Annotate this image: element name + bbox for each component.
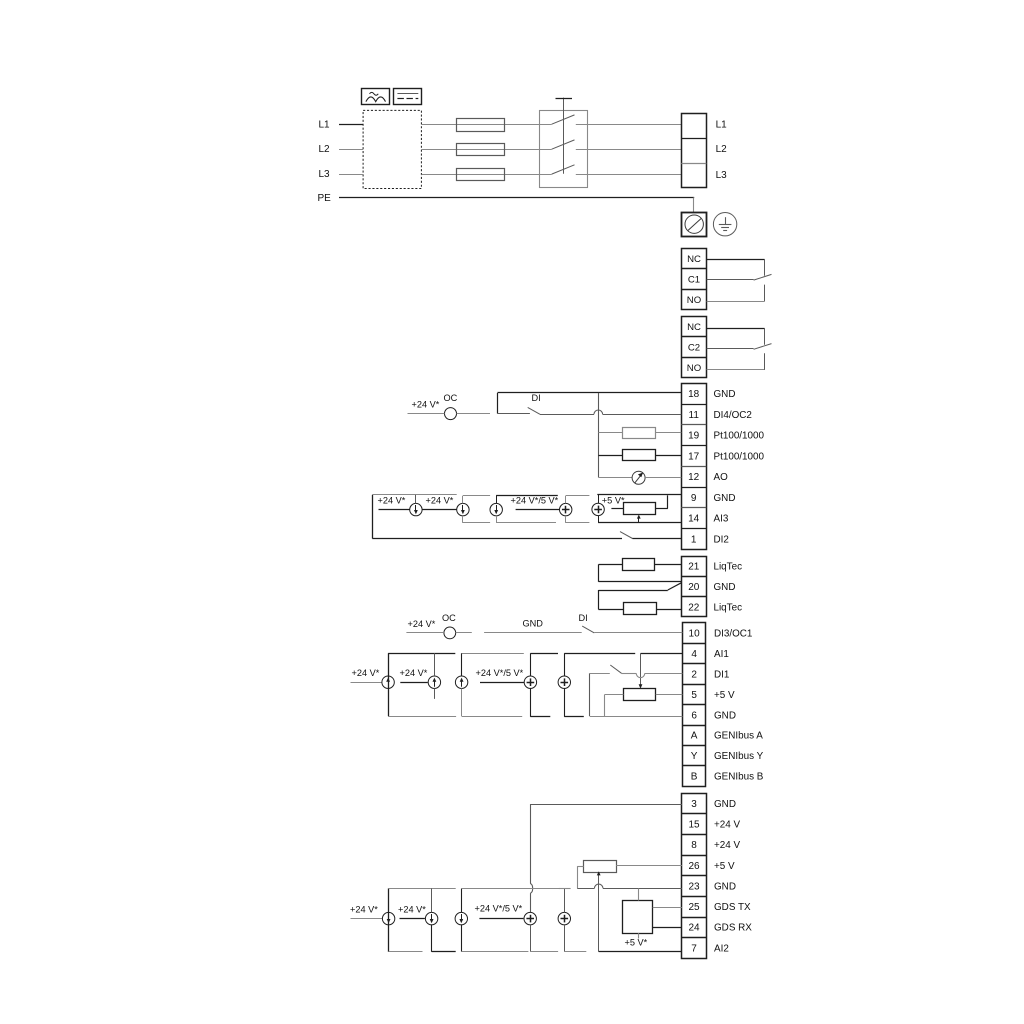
svg-text:25: 25 xyxy=(688,902,700,913)
svg-text:GDS TX: GDS TX xyxy=(714,902,751,913)
svg-text:+24 V*: +24 V* xyxy=(398,905,426,915)
svg-text:+24 V*: +24 V* xyxy=(352,668,380,678)
svg-text:C2: C2 xyxy=(688,343,700,354)
svg-text:+24 V*/5 V*: +24 V*/5 V* xyxy=(475,903,523,913)
svg-text:PE: PE xyxy=(318,193,332,204)
svg-text:GND: GND xyxy=(714,582,736,593)
svg-text:14: 14 xyxy=(688,514,700,525)
svg-text:10: 10 xyxy=(689,629,701,640)
svg-text:NC: NC xyxy=(687,254,701,265)
svg-text:GENIbus B: GENIbus B xyxy=(714,772,764,783)
svg-text:GENIbus A: GENIbus A xyxy=(714,731,763,742)
svg-text:+24 V*: +24 V* xyxy=(408,619,436,629)
svg-text:OC: OC xyxy=(444,393,458,403)
svg-text:DI1: DI1 xyxy=(714,669,730,680)
svg-text:GENIbus Y: GENIbus Y xyxy=(714,751,764,762)
svg-text:4: 4 xyxy=(691,649,697,660)
svg-text:LiqTec: LiqTec xyxy=(714,562,743,573)
svg-text:+24 V*: +24 V* xyxy=(400,668,428,678)
svg-text:+24 V: +24 V xyxy=(714,840,740,851)
svg-text:22: 22 xyxy=(688,602,700,613)
svg-text:8: 8 xyxy=(691,840,697,851)
svg-text:DI3/OC1: DI3/OC1 xyxy=(714,629,753,640)
svg-text:+24 V*: +24 V* xyxy=(426,496,454,506)
svg-text:+24 V*/5 V*: +24 V*/5 V* xyxy=(511,496,559,506)
svg-text:21: 21 xyxy=(688,562,700,573)
svg-text:18: 18 xyxy=(688,389,700,400)
svg-text:GND: GND xyxy=(714,710,736,721)
svg-text:L2: L2 xyxy=(716,144,728,155)
svg-text:DI: DI xyxy=(532,393,541,403)
svg-text:AI2: AI2 xyxy=(714,943,729,954)
svg-text:+5 V: +5 V xyxy=(714,861,735,872)
svg-text:GND: GND xyxy=(714,389,736,400)
svg-text:2: 2 xyxy=(691,669,697,680)
svg-text:L1: L1 xyxy=(716,119,728,130)
svg-text:+24 V*: +24 V* xyxy=(378,496,406,506)
svg-text:6: 6 xyxy=(691,710,697,721)
svg-text:NO: NO xyxy=(687,363,701,374)
svg-text:GND: GND xyxy=(714,881,736,892)
svg-text:3: 3 xyxy=(691,799,697,810)
svg-text:7: 7 xyxy=(691,943,697,954)
svg-text:NO: NO xyxy=(687,295,701,306)
svg-text:5: 5 xyxy=(691,690,697,701)
svg-text:Pt100/1000: Pt100/1000 xyxy=(714,431,765,442)
svg-text:DI: DI xyxy=(579,613,588,623)
svg-text:23: 23 xyxy=(688,881,700,892)
svg-text:A: A xyxy=(691,731,698,742)
svg-text:1: 1 xyxy=(691,534,697,545)
svg-text:9: 9 xyxy=(691,493,697,504)
svg-text:GND: GND xyxy=(523,618,544,628)
svg-text:GND: GND xyxy=(714,493,736,504)
svg-text:+24 V*: +24 V* xyxy=(412,399,440,409)
svg-text:12: 12 xyxy=(688,472,700,483)
svg-text:GND: GND xyxy=(714,799,736,810)
svg-text:26: 26 xyxy=(688,861,700,872)
svg-text:+5 V: +5 V xyxy=(714,690,735,701)
svg-text:20: 20 xyxy=(688,582,700,593)
svg-text:GDS RX: GDS RX xyxy=(714,923,752,934)
svg-text:L3: L3 xyxy=(319,169,331,180)
svg-text:L2: L2 xyxy=(319,144,331,155)
svg-text:24: 24 xyxy=(688,923,700,934)
svg-text:11: 11 xyxy=(689,410,700,421)
svg-text:Pt100/1000: Pt100/1000 xyxy=(714,451,765,462)
svg-text:L1: L1 xyxy=(319,119,331,130)
svg-text:+24 V*/5 V*: +24 V*/5 V* xyxy=(476,668,524,678)
svg-text:C1: C1 xyxy=(688,275,700,286)
svg-text:+5 V*: +5 V* xyxy=(602,496,625,506)
svg-text:AI3: AI3 xyxy=(714,514,729,525)
svg-text:DI2: DI2 xyxy=(714,534,729,545)
svg-text:17: 17 xyxy=(688,451,700,462)
svg-text:19: 19 xyxy=(688,431,700,442)
svg-text:NC: NC xyxy=(687,322,701,333)
svg-text:AO: AO xyxy=(714,472,729,483)
svg-text:15: 15 xyxy=(688,819,700,830)
svg-text:+24 V*: +24 V* xyxy=(350,905,378,915)
svg-text:AI1: AI1 xyxy=(714,649,729,660)
svg-text:DI4/OC2: DI4/OC2 xyxy=(714,410,752,421)
svg-text:Y: Y xyxy=(691,751,698,762)
svg-text:B: B xyxy=(691,772,698,783)
svg-text:+5 V*: +5 V* xyxy=(625,938,648,948)
svg-text:+24 V: +24 V xyxy=(714,819,740,830)
svg-text:LiqTec: LiqTec xyxy=(714,602,743,613)
svg-text:OC: OC xyxy=(442,613,456,623)
svg-text:L3: L3 xyxy=(716,170,728,181)
